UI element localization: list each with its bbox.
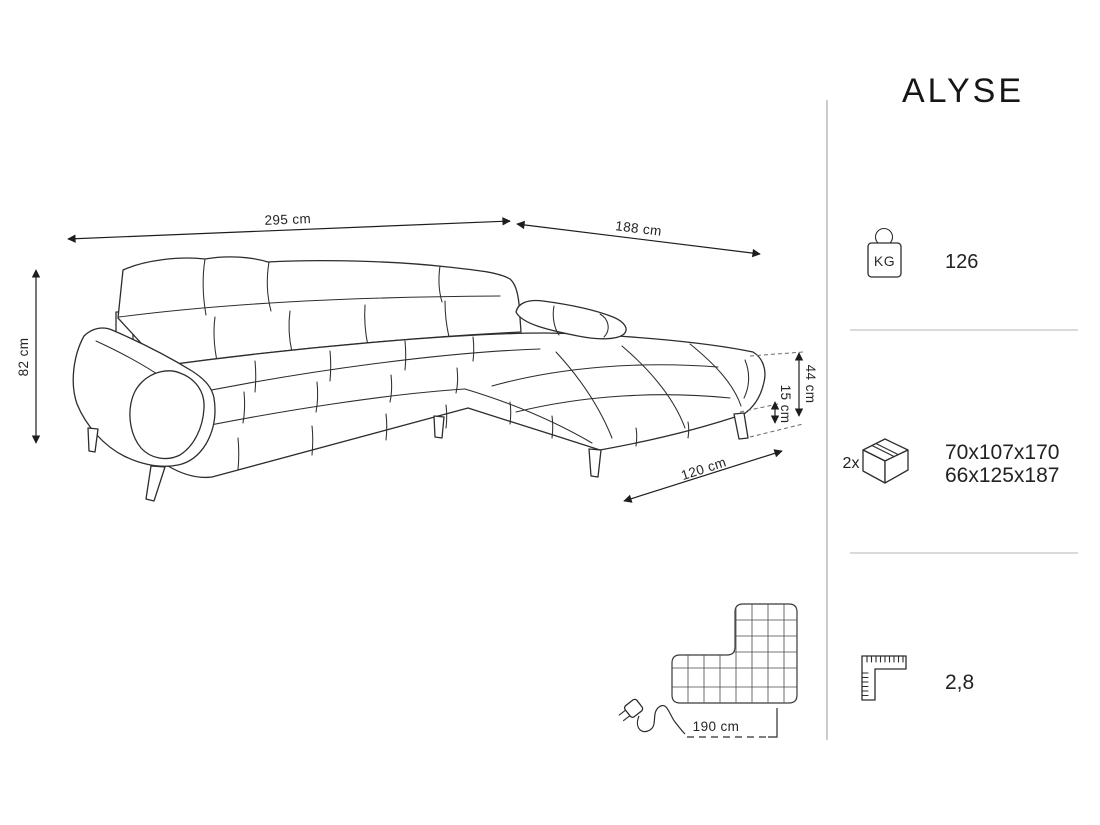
dim-leg-height-label: 15 cm (778, 385, 793, 424)
package-dims-line1: 70x107x170 (945, 441, 1059, 464)
dim-cable-length-label: 190 cm (693, 719, 740, 734)
power-plug-icon (617, 698, 685, 734)
package-box-icon (863, 439, 908, 483)
volume-section: 2,8 (862, 656, 974, 700)
dim-depth-label: 188 cm (614, 218, 662, 239)
weight-value: 126 (945, 251, 978, 273)
package-dims-line2: 66x125x187 (945, 464, 1059, 487)
product-title: ALYSE (902, 72, 1024, 110)
weight-section: KG 126 (868, 229, 978, 278)
top-view-outline (672, 604, 797, 703)
kg-badge-label: KG (874, 253, 895, 269)
package-section: 2x 70x107x170 66x125x187 (843, 439, 1060, 487)
weight-kg-bag-icon: KG (868, 229, 901, 278)
package-count: 2x (843, 455, 860, 472)
spec-sheet: 295 cm 188 cm 82 cm 44 cm 15 cm 120 cm (0, 0, 1100, 825)
power-cord (637, 705, 685, 734)
dim-height-label: 82 cm (16, 338, 31, 377)
dim-chaise-depth-label: 120 cm (679, 454, 728, 483)
volume-value: 2,8 (945, 671, 974, 694)
dim-width-label: 295 cm (264, 211, 311, 228)
ruler-corner-icon (862, 656, 906, 700)
dim-seat-height-label: 44 cm (803, 365, 818, 404)
info-panel: ALYSE KG 126 2x 70x107x170 66x125x187 (827, 72, 1078, 740)
spec-sheet-svg: 295 cm 188 cm 82 cm 44 cm 15 cm 120 cm (0, 0, 1100, 825)
sofa-illustration (73, 257, 765, 501)
top-view-diagram: 190 cm (617, 600, 800, 737)
